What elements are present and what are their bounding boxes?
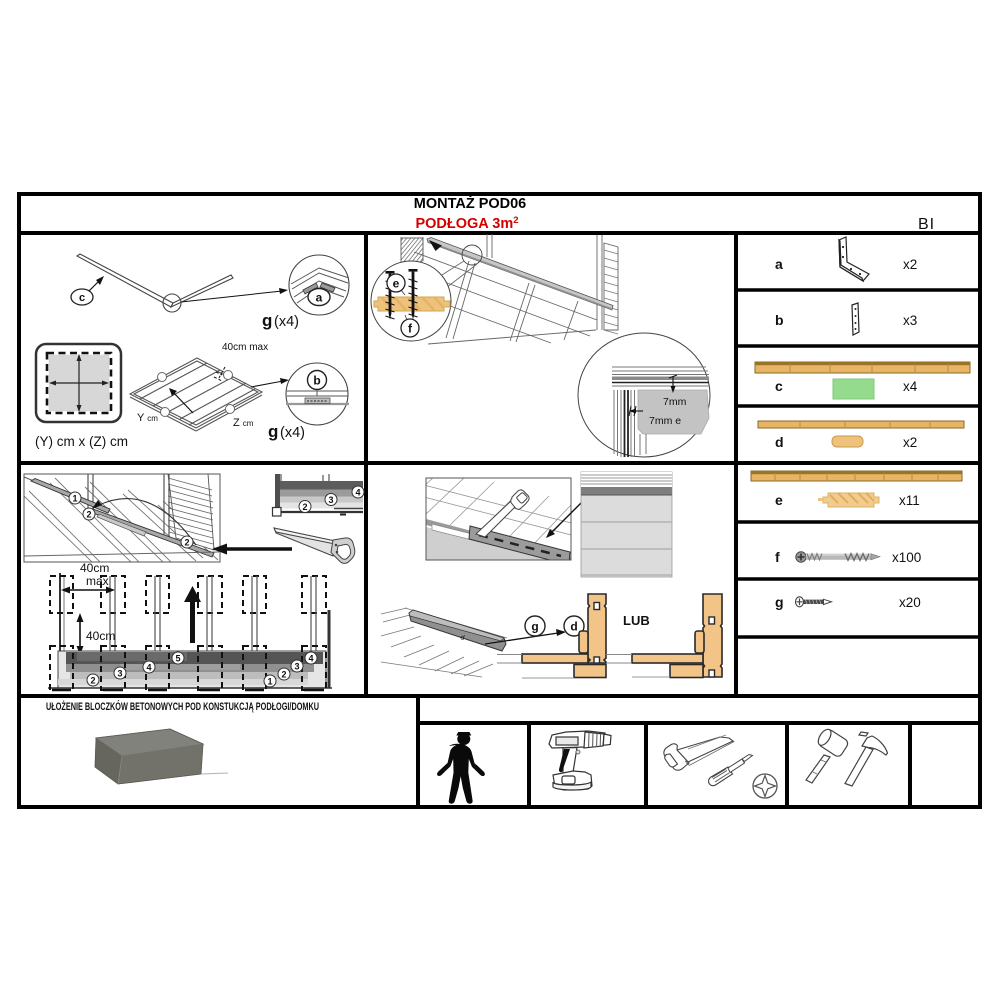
svg-text:(x4): (x4) bbox=[274, 314, 299, 330]
svg-text:MONTAŻ POD06: MONTAŻ POD06 bbox=[414, 195, 527, 212]
svg-text:40cm max: 40cm max bbox=[222, 342, 268, 353]
svg-text:4: 4 bbox=[355, 488, 360, 498]
svg-text:x2: x2 bbox=[903, 257, 917, 272]
svg-text:c: c bbox=[79, 292, 85, 304]
svg-text:5: 5 bbox=[175, 654, 180, 664]
svg-text:g: g bbox=[268, 422, 278, 441]
svg-text:2: 2 bbox=[86, 510, 91, 520]
svg-text:g: g bbox=[531, 620, 538, 634]
svg-text:x4: x4 bbox=[903, 379, 918, 394]
svg-text:3: 3 bbox=[294, 662, 299, 672]
svg-text:e: e bbox=[393, 277, 400, 291]
svg-text:c: c bbox=[775, 378, 783, 394]
svg-text:g: g bbox=[262, 311, 272, 330]
svg-text:max: max bbox=[86, 574, 109, 588]
svg-text:3: 3 bbox=[328, 495, 333, 505]
svg-text:4: 4 bbox=[308, 654, 313, 664]
svg-text:a: a bbox=[316, 291, 323, 305]
svg-text:g: g bbox=[775, 594, 784, 610]
svg-text:x100: x100 bbox=[892, 550, 921, 565]
svg-text:LUB: LUB bbox=[623, 613, 650, 628]
svg-text:x20: x20 bbox=[899, 595, 921, 610]
svg-text:x11: x11 bbox=[899, 493, 920, 508]
svg-text:2: 2 bbox=[302, 502, 307, 512]
svg-text:PODŁOGA 3m2: PODŁOGA 3m2 bbox=[415, 215, 518, 232]
svg-text:x2: x2 bbox=[903, 435, 917, 450]
svg-text:e: e bbox=[775, 492, 783, 508]
svg-text:1: 1 bbox=[72, 494, 77, 504]
svg-text:b: b bbox=[313, 374, 320, 388]
svg-text:1: 1 bbox=[267, 677, 272, 687]
svg-text:b: b bbox=[775, 312, 784, 328]
svg-text:4: 4 bbox=[146, 663, 151, 673]
svg-text:7mm e: 7mm e bbox=[649, 415, 681, 427]
svg-text:d: d bbox=[775, 434, 784, 450]
svg-text:(x4): (x4) bbox=[280, 425, 305, 441]
svg-text:40cm: 40cm bbox=[86, 629, 115, 643]
svg-text:UŁOŻENIE BLOCZKÓW BETONOWYCH P: UŁOŻENIE BLOCZKÓW BETONOWYCH POD KONSTUK… bbox=[46, 700, 319, 713]
svg-text:d: d bbox=[570, 620, 577, 634]
svg-text:3: 3 bbox=[117, 669, 122, 679]
svg-text:f: f bbox=[775, 549, 780, 565]
svg-text:(Y) cm x (Z) cm: (Y) cm x (Z) cm bbox=[35, 434, 128, 449]
svg-text:BI: BI bbox=[918, 216, 935, 233]
svg-text:40cm: 40cm bbox=[80, 561, 109, 575]
svg-text:a: a bbox=[775, 256, 783, 272]
svg-text:2: 2 bbox=[90, 676, 95, 686]
svg-text:Z cm: Z cm bbox=[233, 417, 254, 429]
svg-text:7mm: 7mm bbox=[663, 396, 687, 408]
svg-text:2: 2 bbox=[184, 538, 189, 548]
svg-text:Y cm: Y cm bbox=[137, 412, 158, 424]
svg-text:x3: x3 bbox=[903, 313, 917, 328]
svg-text:2: 2 bbox=[281, 670, 286, 680]
